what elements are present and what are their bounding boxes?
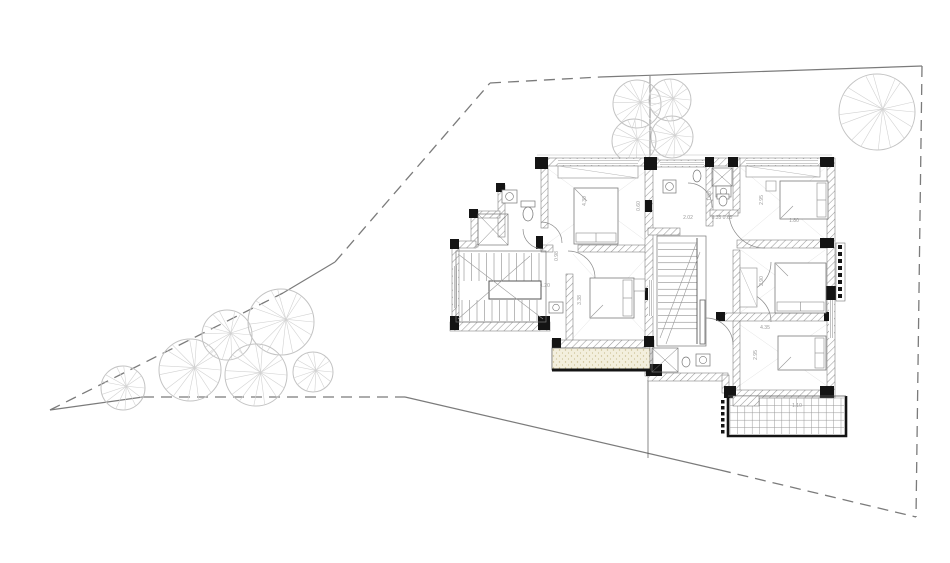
dimension-label: 0.35 0.65 <box>712 215 733 221</box>
tree-icon <box>293 352 333 392</box>
dimension-label: 1.88 <box>707 191 713 201</box>
bed-symbol <box>780 181 828 219</box>
dimension-label: 2.90 <box>759 276 765 286</box>
dimension-label: 4.30 <box>582 196 588 206</box>
dimension-label: 2.95 <box>753 350 759 360</box>
dimension-label: 0.98 <box>554 251 560 261</box>
dimension-label: 1.80 <box>789 218 799 224</box>
bed-symbol <box>574 188 618 244</box>
dimension-label: 2.02 <box>683 215 693 221</box>
tree-icon <box>202 310 252 360</box>
dimension-label: 1.20 <box>540 283 550 289</box>
tree-icon <box>839 74 915 150</box>
tree-icon <box>248 289 314 355</box>
door-swing-arc <box>706 318 733 345</box>
bed-symbol <box>590 278 634 318</box>
site-plan-page: 1.200.983.384.300.601.882.020.35 0.652.9… <box>0 0 950 563</box>
dimension-label: 1.10 <box>792 403 802 409</box>
bed-symbol <box>775 263 826 313</box>
dimension-label: 2.95 <box>759 195 765 205</box>
site-plan-drawing: 1.200.983.384.300.601.882.020.35 0.652.9… <box>0 0 950 563</box>
dimension-label: 0.60 <box>636 201 642 211</box>
dimension-label: 3.38 <box>577 295 583 305</box>
dimension-label: 4.35 <box>760 325 770 331</box>
tree-icon <box>649 79 691 121</box>
tree-icon <box>101 366 145 410</box>
bed-symbol <box>778 336 826 370</box>
tree-icon <box>159 339 221 401</box>
tree-icon <box>612 119 656 163</box>
tree-icon <box>651 116 693 158</box>
